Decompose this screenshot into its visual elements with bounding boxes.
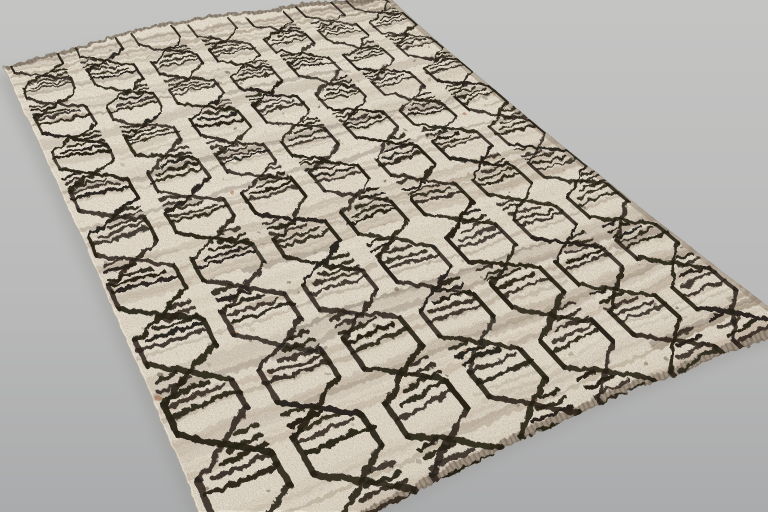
rug-illustration: [0, 0, 768, 512]
photo-canvas: [0, 0, 768, 512]
rug-photo: [0, 0, 768, 512]
